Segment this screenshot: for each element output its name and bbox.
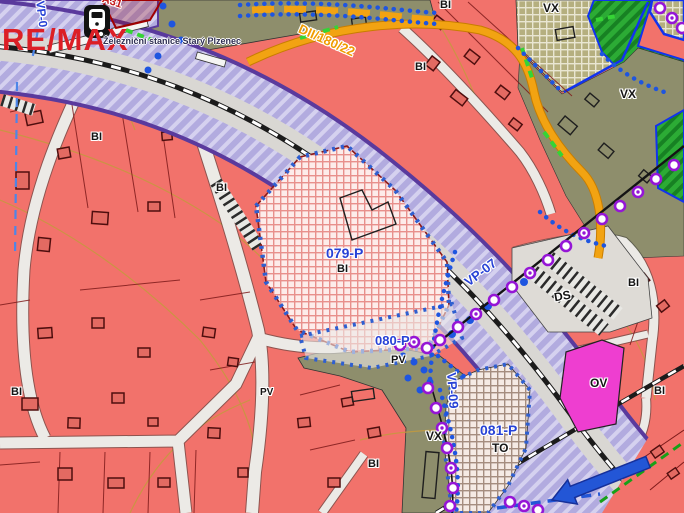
ds-zone-label: DS — [553, 289, 572, 304]
plot-079-use-label: BI — [337, 264, 348, 275]
pv-street-label: PV — [260, 388, 273, 398]
vx-zone-top-label: VX — [543, 2, 559, 14]
bi-zone-bottomleft-label: BI — [11, 387, 22, 398]
bi-zone-top-label: BI — [440, 0, 451, 11]
plot-081-use-label: TO — [492, 442, 508, 454]
bi-zone-center-label: BI — [216, 183, 227, 194]
bi-zone-topright-label: BI — [415, 62, 426, 73]
plot-079-id-label: 079-P — [326, 246, 363, 260]
bi-zone-left-label: BI — [91, 132, 102, 143]
bi-zone-right-label: BI — [628, 278, 639, 289]
ov-zone-label: OV — [590, 377, 607, 389]
plot-081-id-label: 081-P — [480, 423, 517, 437]
station-name: Železniční stanice Starý Plzenec — [103, 37, 241, 46]
bi-zone-farright-label: BI — [654, 386, 665, 397]
vx-zone-bottom-label: VX — [426, 430, 442, 442]
vp09-corridor-label: VP-09 — [445, 372, 460, 409]
vx-zone-right-label: VX — [620, 88, 636, 100]
bi-zone-bottomcenter-label: BI — [368, 459, 379, 470]
plot-080-id-label: 080-P — [375, 334, 410, 347]
plot-080-use-label: PV — [391, 355, 406, 366]
zoning-map: RE/MAX Železniční stanice Starý Plzenec … — [0, 0, 684, 513]
vp0-corridor-label: VP-0 — [34, 0, 49, 28]
